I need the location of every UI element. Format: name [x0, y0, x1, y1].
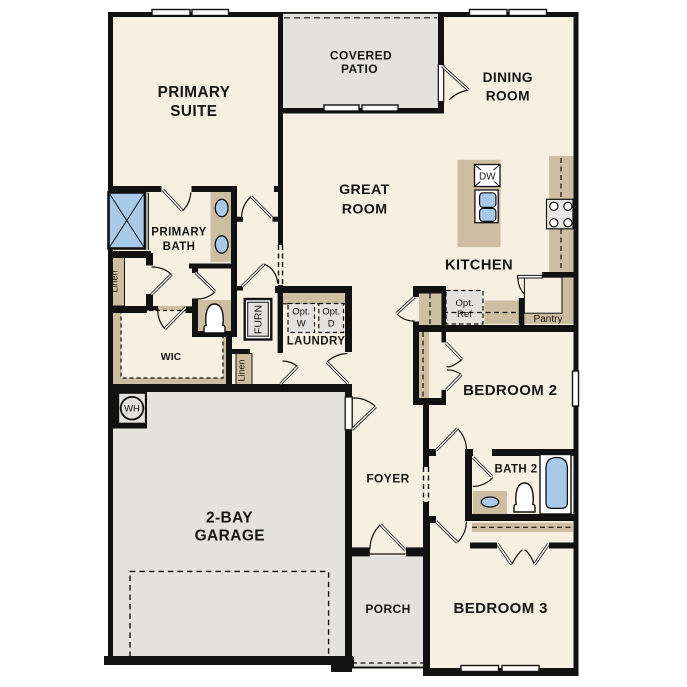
svg-text:D: D [328, 319, 335, 330]
svg-text:LAUNDRY: LAUNDRY [287, 336, 346, 348]
svg-text:DINING: DINING [483, 70, 533, 85]
svg-text:BATH: BATH [163, 241, 196, 253]
svg-text:GREAT: GREAT [339, 182, 390, 198]
svg-text:KITCHEN: KITCHEN [445, 258, 513, 274]
svg-text:Ref: Ref [457, 309, 472, 320]
svg-text:Opt.: Opt. [456, 298, 474, 309]
svg-text:Linen: Linen [237, 359, 247, 381]
svg-text:PATIO: PATIO [341, 62, 378, 76]
svg-text:COVERED: COVERED [330, 48, 392, 62]
svg-text:PRIMARY: PRIMARY [151, 227, 206, 239]
svg-text:Linen: Linen [110, 270, 120, 292]
svg-text:BEDROOM 3: BEDROOM 3 [453, 600, 547, 617]
svg-text:WH: WH [124, 404, 140, 415]
svg-text:ROOM: ROOM [486, 88, 530, 103]
svg-text:FOYER: FOYER [366, 472, 409, 486]
svg-text:DW: DW [479, 172, 496, 183]
svg-text:PORCH: PORCH [365, 602, 410, 616]
svg-text:WIC: WIC [161, 351, 182, 363]
svg-text:FURN: FURN [253, 305, 265, 334]
svg-text:BATH 2: BATH 2 [494, 464, 537, 476]
svg-text:BEDROOM 2: BEDROOM 2 [463, 382, 557, 399]
svg-text:Pantry: Pantry [534, 314, 563, 325]
svg-text:PRIMARY: PRIMARY [158, 84, 231, 101]
svg-text:Opt.: Opt. [292, 307, 310, 318]
svg-text:Opt.: Opt. [322, 307, 340, 318]
svg-text:SUITE: SUITE [170, 103, 217, 120]
svg-text:GARAGE: GARAGE [195, 528, 265, 545]
svg-text:ROOM: ROOM [342, 202, 388, 218]
svg-text:W: W [297, 319, 306, 330]
svg-text:2-BAY: 2-BAY [206, 510, 253, 527]
